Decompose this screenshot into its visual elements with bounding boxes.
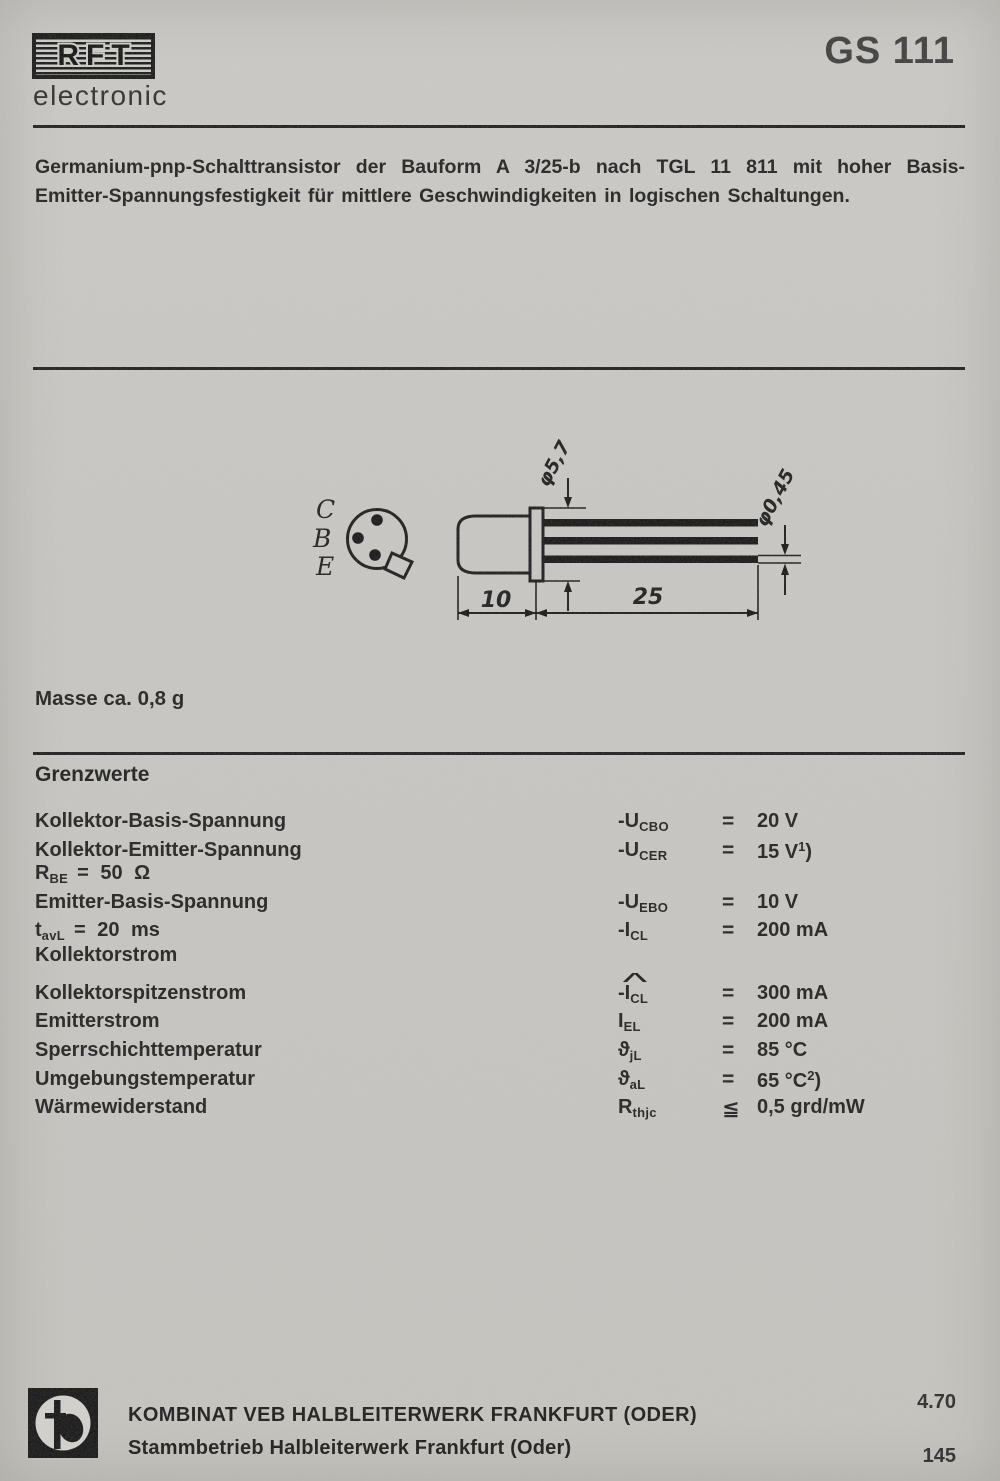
hfo-logo (28, 1388, 98, 1458)
issue-code: 4.70 (917, 1391, 956, 1414)
limit-symbol: -ICL (618, 919, 648, 943)
limit-value: 85 °C (757, 1039, 807, 1062)
brand-subtext: electronic (33, 80, 168, 112)
limit-label: Wärmewiderstand (35, 1096, 207, 1119)
limit-row-peak-collector-current: Kollektorspitzenstrom ^-ICL = 300 mA (35, 982, 965, 1008)
pin-label-collector: C (316, 495, 335, 524)
limit-label: Emitterstrom (35, 1010, 159, 1033)
limit-label: Emitter-Basis-Spannung (35, 891, 268, 914)
relation-sign: = (722, 810, 734, 834)
lead-base (543, 537, 758, 545)
description-line-2: Emitter-Spannungsfestigkeit für mittlere… (35, 182, 965, 211)
section-rule-top (33, 367, 965, 370)
relation-sign: = (722, 1068, 734, 1092)
limit-symbol: -UCBO (618, 810, 669, 834)
limit-symbol: IEL (618, 1010, 641, 1034)
limit-value: 200 mA (757, 919, 828, 942)
product-code: GS 111 (824, 30, 955, 73)
limit-row-emitter-base-voltage: Emitter-Basis-Spannung -UEBO = 10 V (35, 891, 965, 917)
rft-logo-text: RFT (50, 41, 136, 71)
peak-hat-icon: ^ (604, 968, 667, 997)
limit-row-collector-base-voltage: Kollektor-Basis-Spannung -UCBO = 20 V (35, 810, 965, 836)
pin-label-base: B (312, 524, 331, 553)
limit-symbol: ϑaL (618, 1068, 645, 1092)
mass-note: Masse ca. 0,8 g (35, 687, 184, 711)
company-line-2: Stammbetrieb Halbleiterwerk Frankfurt (O… (128, 1437, 571, 1460)
flange (530, 508, 543, 581)
datasheet-page: RFT electronic GS 111 Germanium-pnp-Scha… (0, 0, 1000, 1481)
lead-collector (543, 519, 758, 527)
relation-sign: = (722, 1010, 734, 1034)
limit-condition-rbe: RBE= 50 Ω (35, 862, 965, 888)
limit-symbol: ϑjL (618, 1039, 642, 1063)
limit-value: 20 V (757, 810, 798, 833)
limit-row-thermal-resistance: Wärmewiderstand Rthjc ≦ 0,5 grd/mW (35, 1096, 965, 1122)
limit-label: Umgebungstemperatur (35, 1068, 255, 1091)
company-line-1: KOMBINAT VEB HALBLEITERWERK FRANKFURT (O… (128, 1404, 697, 1427)
condition-text: RBE= 50 Ω (35, 862, 150, 886)
limit-row-ambient-temperature: Umgebungstemperatur ϑaL = 65 °C2) (35, 1068, 965, 1094)
limit-label: Kollektorstrom (35, 944, 177, 967)
pin-label-emitter: E (315, 552, 334, 581)
index-tab (385, 553, 412, 578)
description-paragraph: Germanium-pnp-Schalttransistor der Baufo… (35, 153, 965, 210)
limit-label: Kollektor-Basis-Spannung (35, 810, 286, 833)
pinout-bottom-view (348, 510, 413, 579)
pin-dot-emitter (369, 549, 381, 561)
relation-sign: ≦ (722, 1096, 740, 1121)
limit-row-collector-current: tavL= 20 ms -ICL = 200 mA (35, 919, 965, 945)
page-number: 145 (923, 1445, 956, 1468)
limit-label: Kollektor-Emitter-Spannung (35, 839, 302, 862)
paper-texture (0, 0, 1000, 1481)
dim-flange-diameter-label: φ5,7 (533, 436, 576, 490)
relation-sign: = (722, 891, 734, 915)
relation-sign: = (722, 919, 734, 943)
side-view (458, 508, 758, 581)
rft-logo: RFT (32, 33, 155, 79)
description-line-1: Germanium-pnp-Schalttransistor der Baufo… (35, 153, 965, 182)
limit-label-kollektorstrom: Kollektorstrom (35, 944, 965, 970)
transistor-body (458, 516, 532, 573)
limit-value: 65 °C2) (757, 1068, 821, 1093)
lead-emitter (543, 556, 758, 564)
package-drawing: C B E φ5,7 (280, 430, 840, 670)
limit-row-emitter-current: Emitterstrom IEL = 200 mA (35, 1010, 965, 1036)
dim-lead-length-label: 25 (633, 585, 664, 610)
limit-symbol: Rthjc (618, 1096, 657, 1120)
relation-sign: = (722, 839, 734, 863)
limits-rule (33, 752, 965, 755)
relation-sign: = (722, 1039, 734, 1063)
limit-value: 0,5 grd/mW (757, 1096, 865, 1119)
limit-label: Sperrschichttemperatur (35, 1039, 262, 1062)
header-rule (33, 125, 965, 128)
limits-title: Grenzwerte (35, 763, 149, 787)
pin-dot-collector (371, 514, 383, 526)
condition-text: tavL= 20 ms (35, 919, 160, 943)
limit-value: 200 mA (757, 1010, 828, 1033)
pin-dot-base (352, 532, 364, 544)
limit-row-junction-temperature: Sperrschichttemperatur ϑjL = 85 °C (35, 1039, 965, 1065)
limit-symbol: -UCER (618, 839, 667, 863)
limit-label: Kollektorspitzenstrom (35, 982, 246, 1005)
limit-value: 300 mA (757, 982, 828, 1005)
relation-sign: = (722, 982, 734, 1006)
limit-value: 15 V1) (757, 839, 812, 864)
limit-symbol: ^-ICL (618, 982, 648, 1006)
limit-symbol: -UEBO (618, 891, 668, 915)
dim-body-length-label: 10 (481, 588, 512, 613)
limit-value: 10 V (757, 891, 798, 914)
dim-lead-diameter-label: φ0,45 (751, 465, 799, 530)
